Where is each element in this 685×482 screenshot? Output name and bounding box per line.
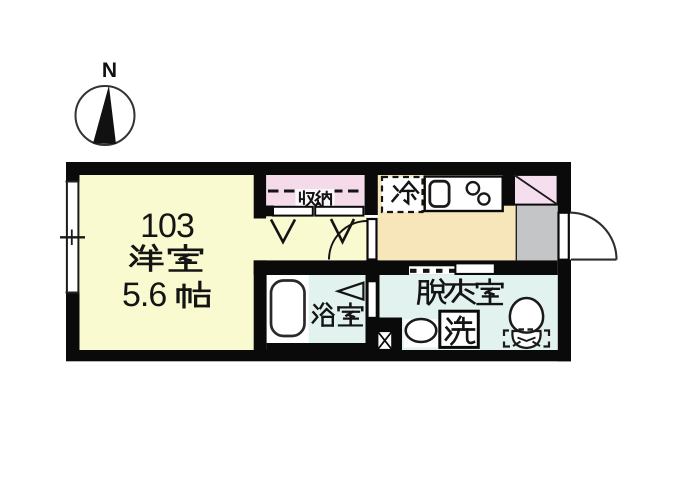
svg-text:N: N — [102, 59, 117, 82]
svg-text:103: 103 — [140, 207, 194, 245]
svg-text:5.6: 5.6 — [122, 276, 166, 314]
